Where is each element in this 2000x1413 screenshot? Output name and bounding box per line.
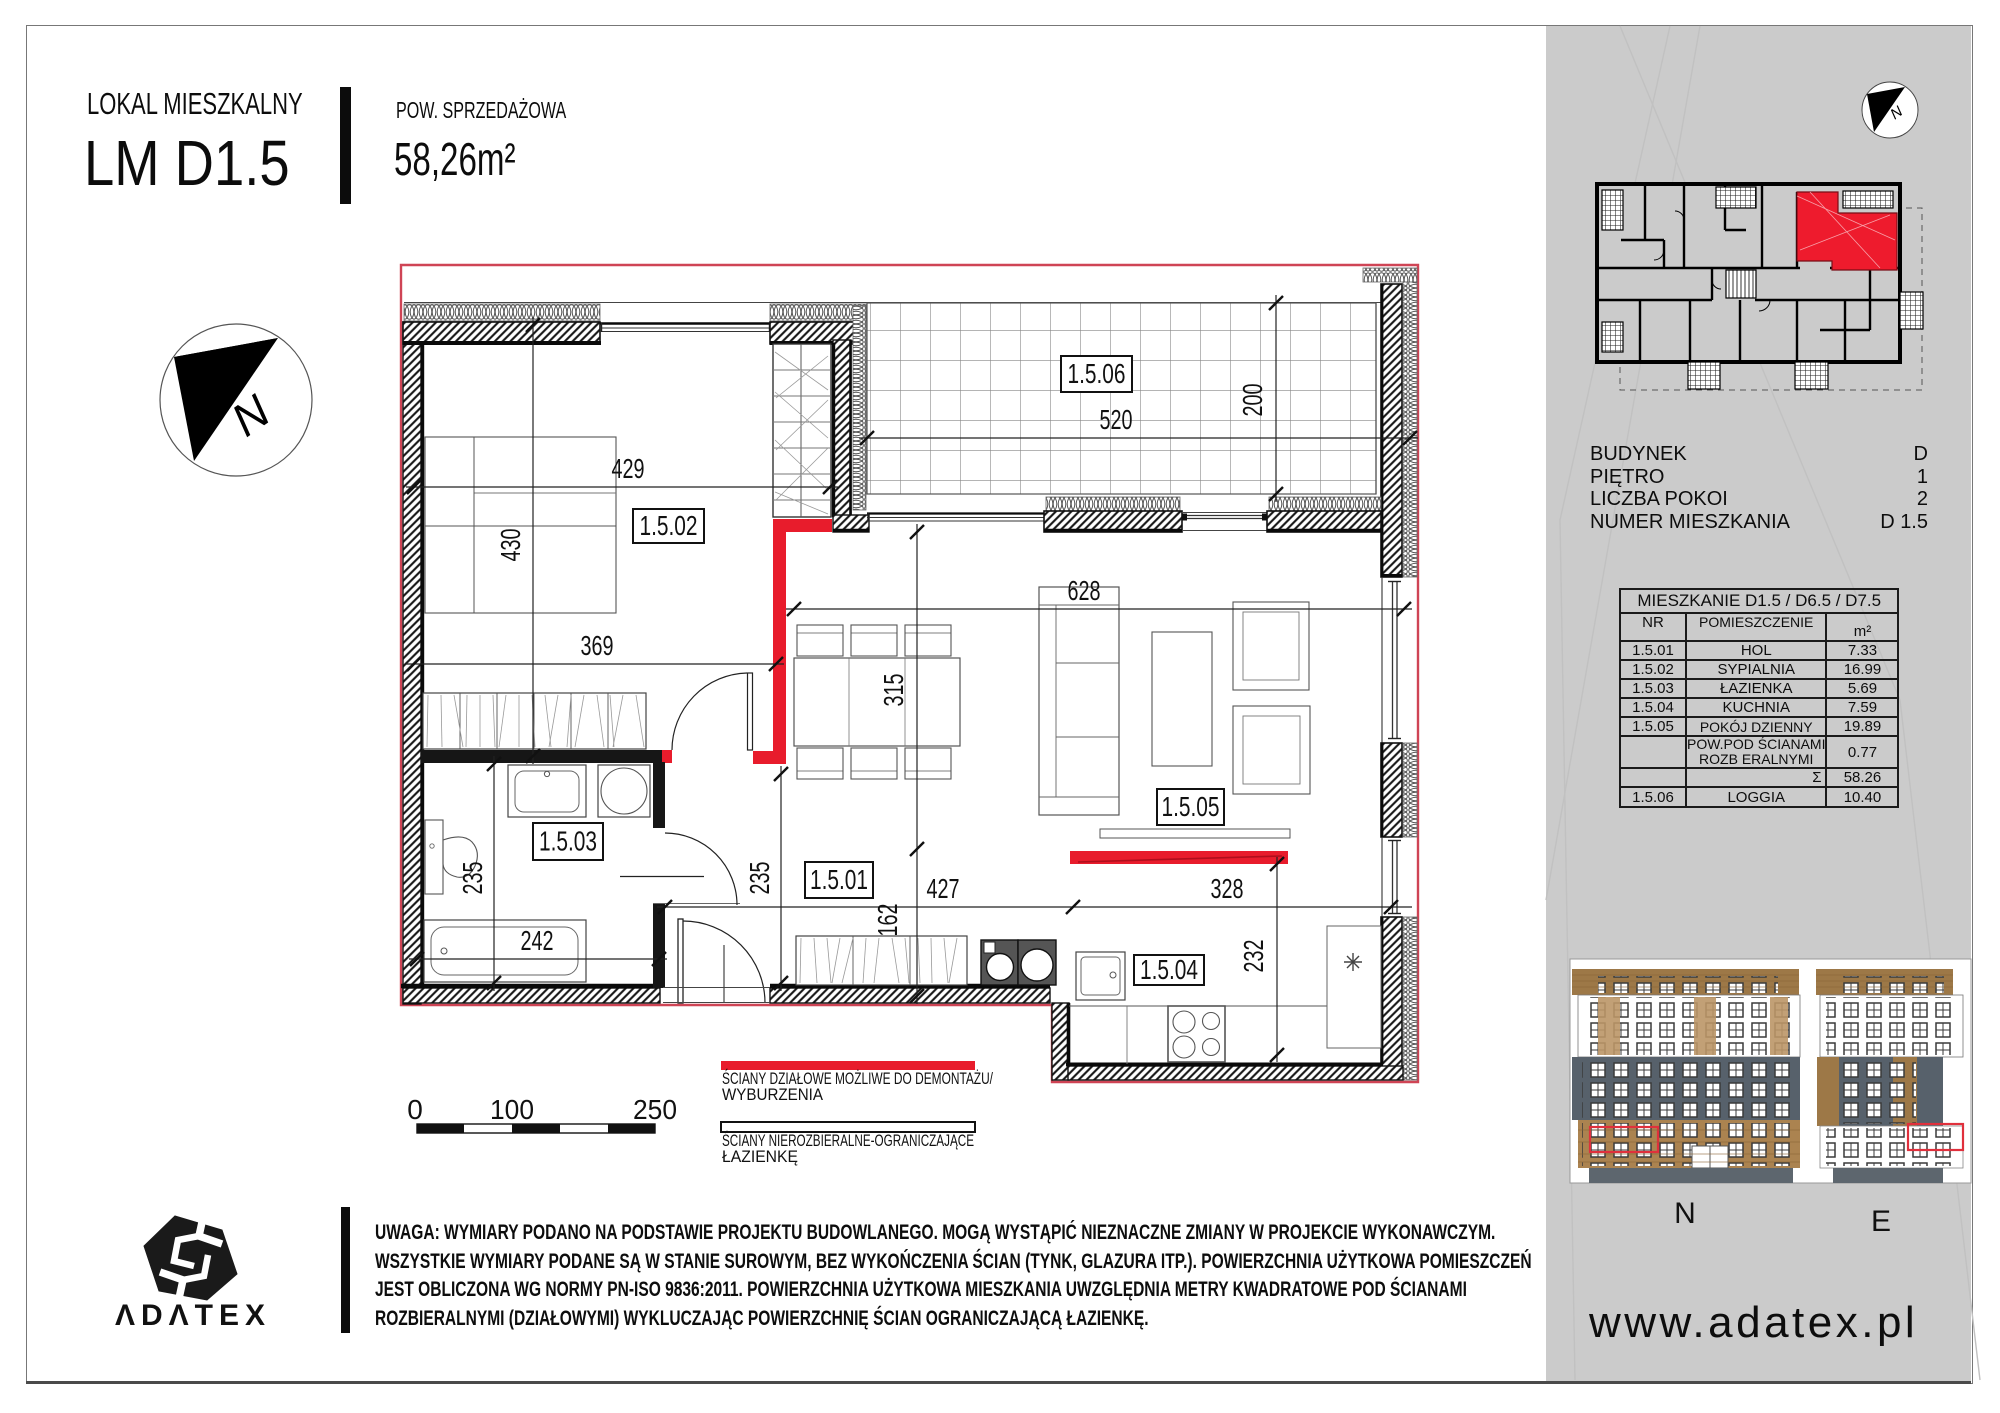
svg-text:100: 100 xyxy=(490,1094,534,1125)
svg-text:430: 430 xyxy=(495,529,526,562)
svg-text:235: 235 xyxy=(744,862,775,895)
svg-text:N: N xyxy=(1674,1197,1696,1230)
svg-text:429: 429 xyxy=(612,453,645,484)
svg-text:1.5.02: 1.5.02 xyxy=(640,510,698,541)
svg-text:242: 242 xyxy=(521,925,554,956)
svg-text:1.5.05: 1.5.05 xyxy=(1162,791,1220,822)
svg-text:1.5.06: 1.5.06 xyxy=(1068,358,1126,389)
svg-text:315: 315 xyxy=(878,674,909,707)
svg-text:520: 520 xyxy=(1100,404,1133,435)
svg-text:162: 162 xyxy=(872,904,903,937)
svg-text:200: 200 xyxy=(1237,384,1268,417)
svg-text:232: 232 xyxy=(1238,940,1269,973)
svg-text:369: 369 xyxy=(581,630,614,661)
svg-text:0: 0 xyxy=(407,1094,423,1125)
svg-text:1.5.01: 1.5.01 xyxy=(810,864,868,895)
svg-text:328: 328 xyxy=(1211,873,1244,904)
svg-text:E: E xyxy=(1871,1205,1891,1238)
svg-text:WYBURZENIA: WYBURZENIA xyxy=(722,1086,823,1104)
svg-text:1.5.03: 1.5.03 xyxy=(539,826,597,857)
svg-text:427: 427 xyxy=(927,873,960,904)
svg-text:250: 250 xyxy=(633,1094,677,1125)
svg-text:235: 235 xyxy=(457,862,488,895)
svg-text:628: 628 xyxy=(1068,575,1101,606)
svg-text:1.5.04: 1.5.04 xyxy=(1140,954,1198,985)
svg-text:ΛDΛTEX: ΛDΛTEX xyxy=(115,1299,271,1332)
svg-text:ŁAZIENKĘ: ŁAZIENKĘ xyxy=(722,1148,798,1166)
